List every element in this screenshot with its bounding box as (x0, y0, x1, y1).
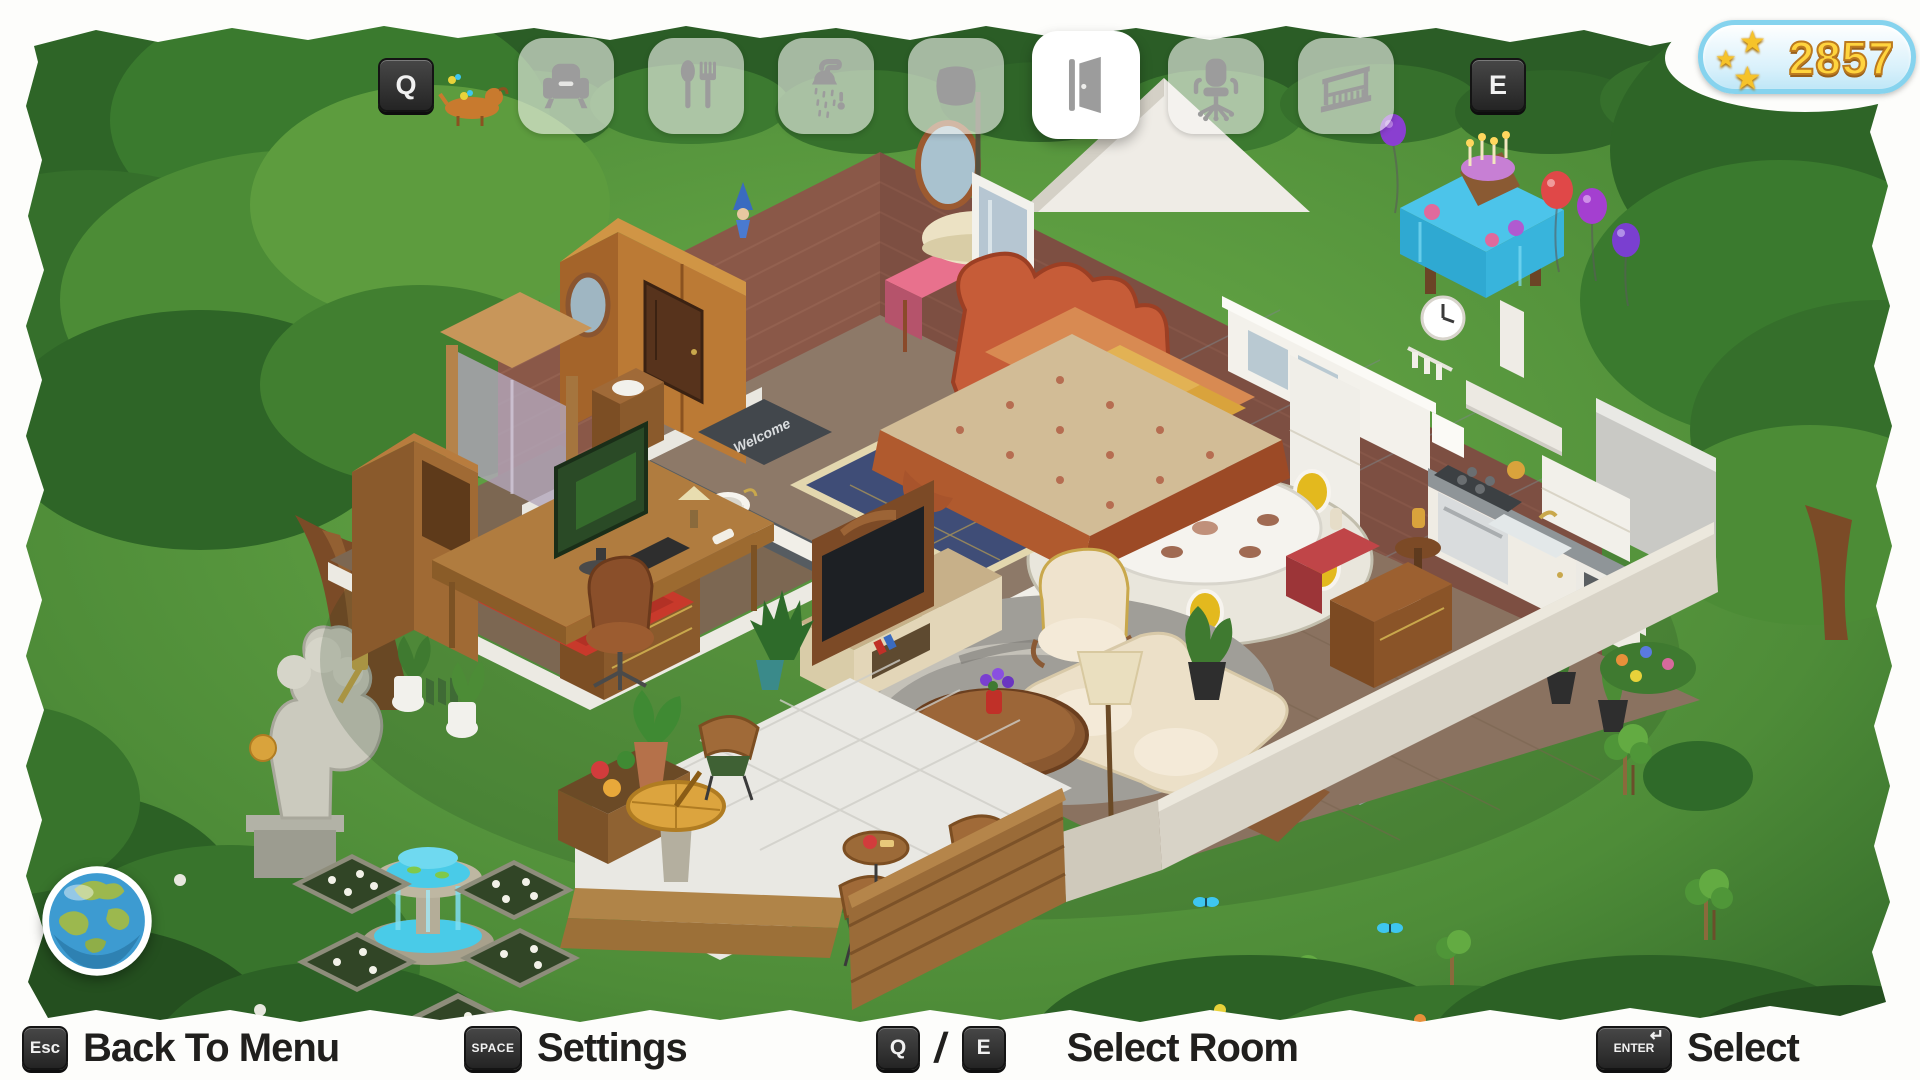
slash-separator: / (932, 1024, 950, 1072)
star-icon: ★ (1739, 25, 1766, 60)
globe-icon (40, 864, 154, 978)
q-key-label: Q (890, 1036, 906, 1060)
space-key-label: Space (472, 1041, 515, 1055)
pillow-icon (919, 49, 993, 123)
select-room-control[interactable]: Q / E Select Room (876, 1022, 1298, 1074)
enter-keycap: Enter ↵ (1596, 1026, 1672, 1070)
esc-keycap: Esc (22, 1026, 68, 1070)
select-room-label: Select Room (1067, 1026, 1298, 1071)
tab-living-room[interactable] (518, 38, 614, 134)
e-key-label: E (977, 1036, 991, 1060)
pergola-icon (1309, 49, 1383, 123)
select-label: Select (1687, 1026, 1799, 1071)
select-control[interactable]: Enter ↵ Select (1596, 1022, 1799, 1074)
wall-clock (1422, 297, 1464, 339)
armchair-icon (529, 49, 603, 123)
tab-dining[interactable] (648, 38, 744, 134)
enter-key-label: Enter (1614, 1041, 1655, 1055)
star-currency-counter[interactable]: ★ ★ ★ 2857 (1698, 20, 1916, 94)
settings-control[interactable]: Space Settings (464, 1022, 687, 1074)
settings-label: Settings (537, 1026, 687, 1071)
return-arrow-icon: ↵ (1650, 1026, 1664, 1046)
isometric-home-scene: Welcome (0, 0, 1920, 1080)
esc-key-label: Esc (30, 1038, 60, 1058)
world-map-button[interactable] (40, 864, 154, 978)
tab-office[interactable] (1168, 38, 1264, 134)
open-door-icon (1049, 48, 1123, 122)
back-to-menu-label: Back To Menu (83, 1026, 339, 1071)
q-keycap: Q (876, 1026, 920, 1070)
tab-terrace[interactable] (1298, 38, 1394, 134)
currency-amount: 2857 (1789, 31, 1895, 85)
tab-bathroom[interactable] (778, 38, 874, 134)
back-to-menu-control[interactable]: Esc Back To Menu (22, 1022, 339, 1074)
tab-hallway[interactable] (1032, 31, 1140, 139)
star-icon: ★ (1733, 59, 1762, 97)
prev-room-keycap: Q (378, 58, 434, 112)
kettle (1507, 461, 1525, 479)
space-keycap: Space (464, 1026, 522, 1070)
e-keycap: E (962, 1026, 1006, 1070)
cutlery-icon (659, 49, 733, 123)
prev-room-key-label: Q (395, 70, 416, 101)
next-room-key-label: E (1489, 70, 1507, 101)
next-room-keycap: E (1470, 58, 1526, 112)
tab-bedroom[interactable] (908, 38, 1004, 134)
office-chair-icon (1179, 49, 1253, 123)
shower-icon (789, 49, 863, 123)
